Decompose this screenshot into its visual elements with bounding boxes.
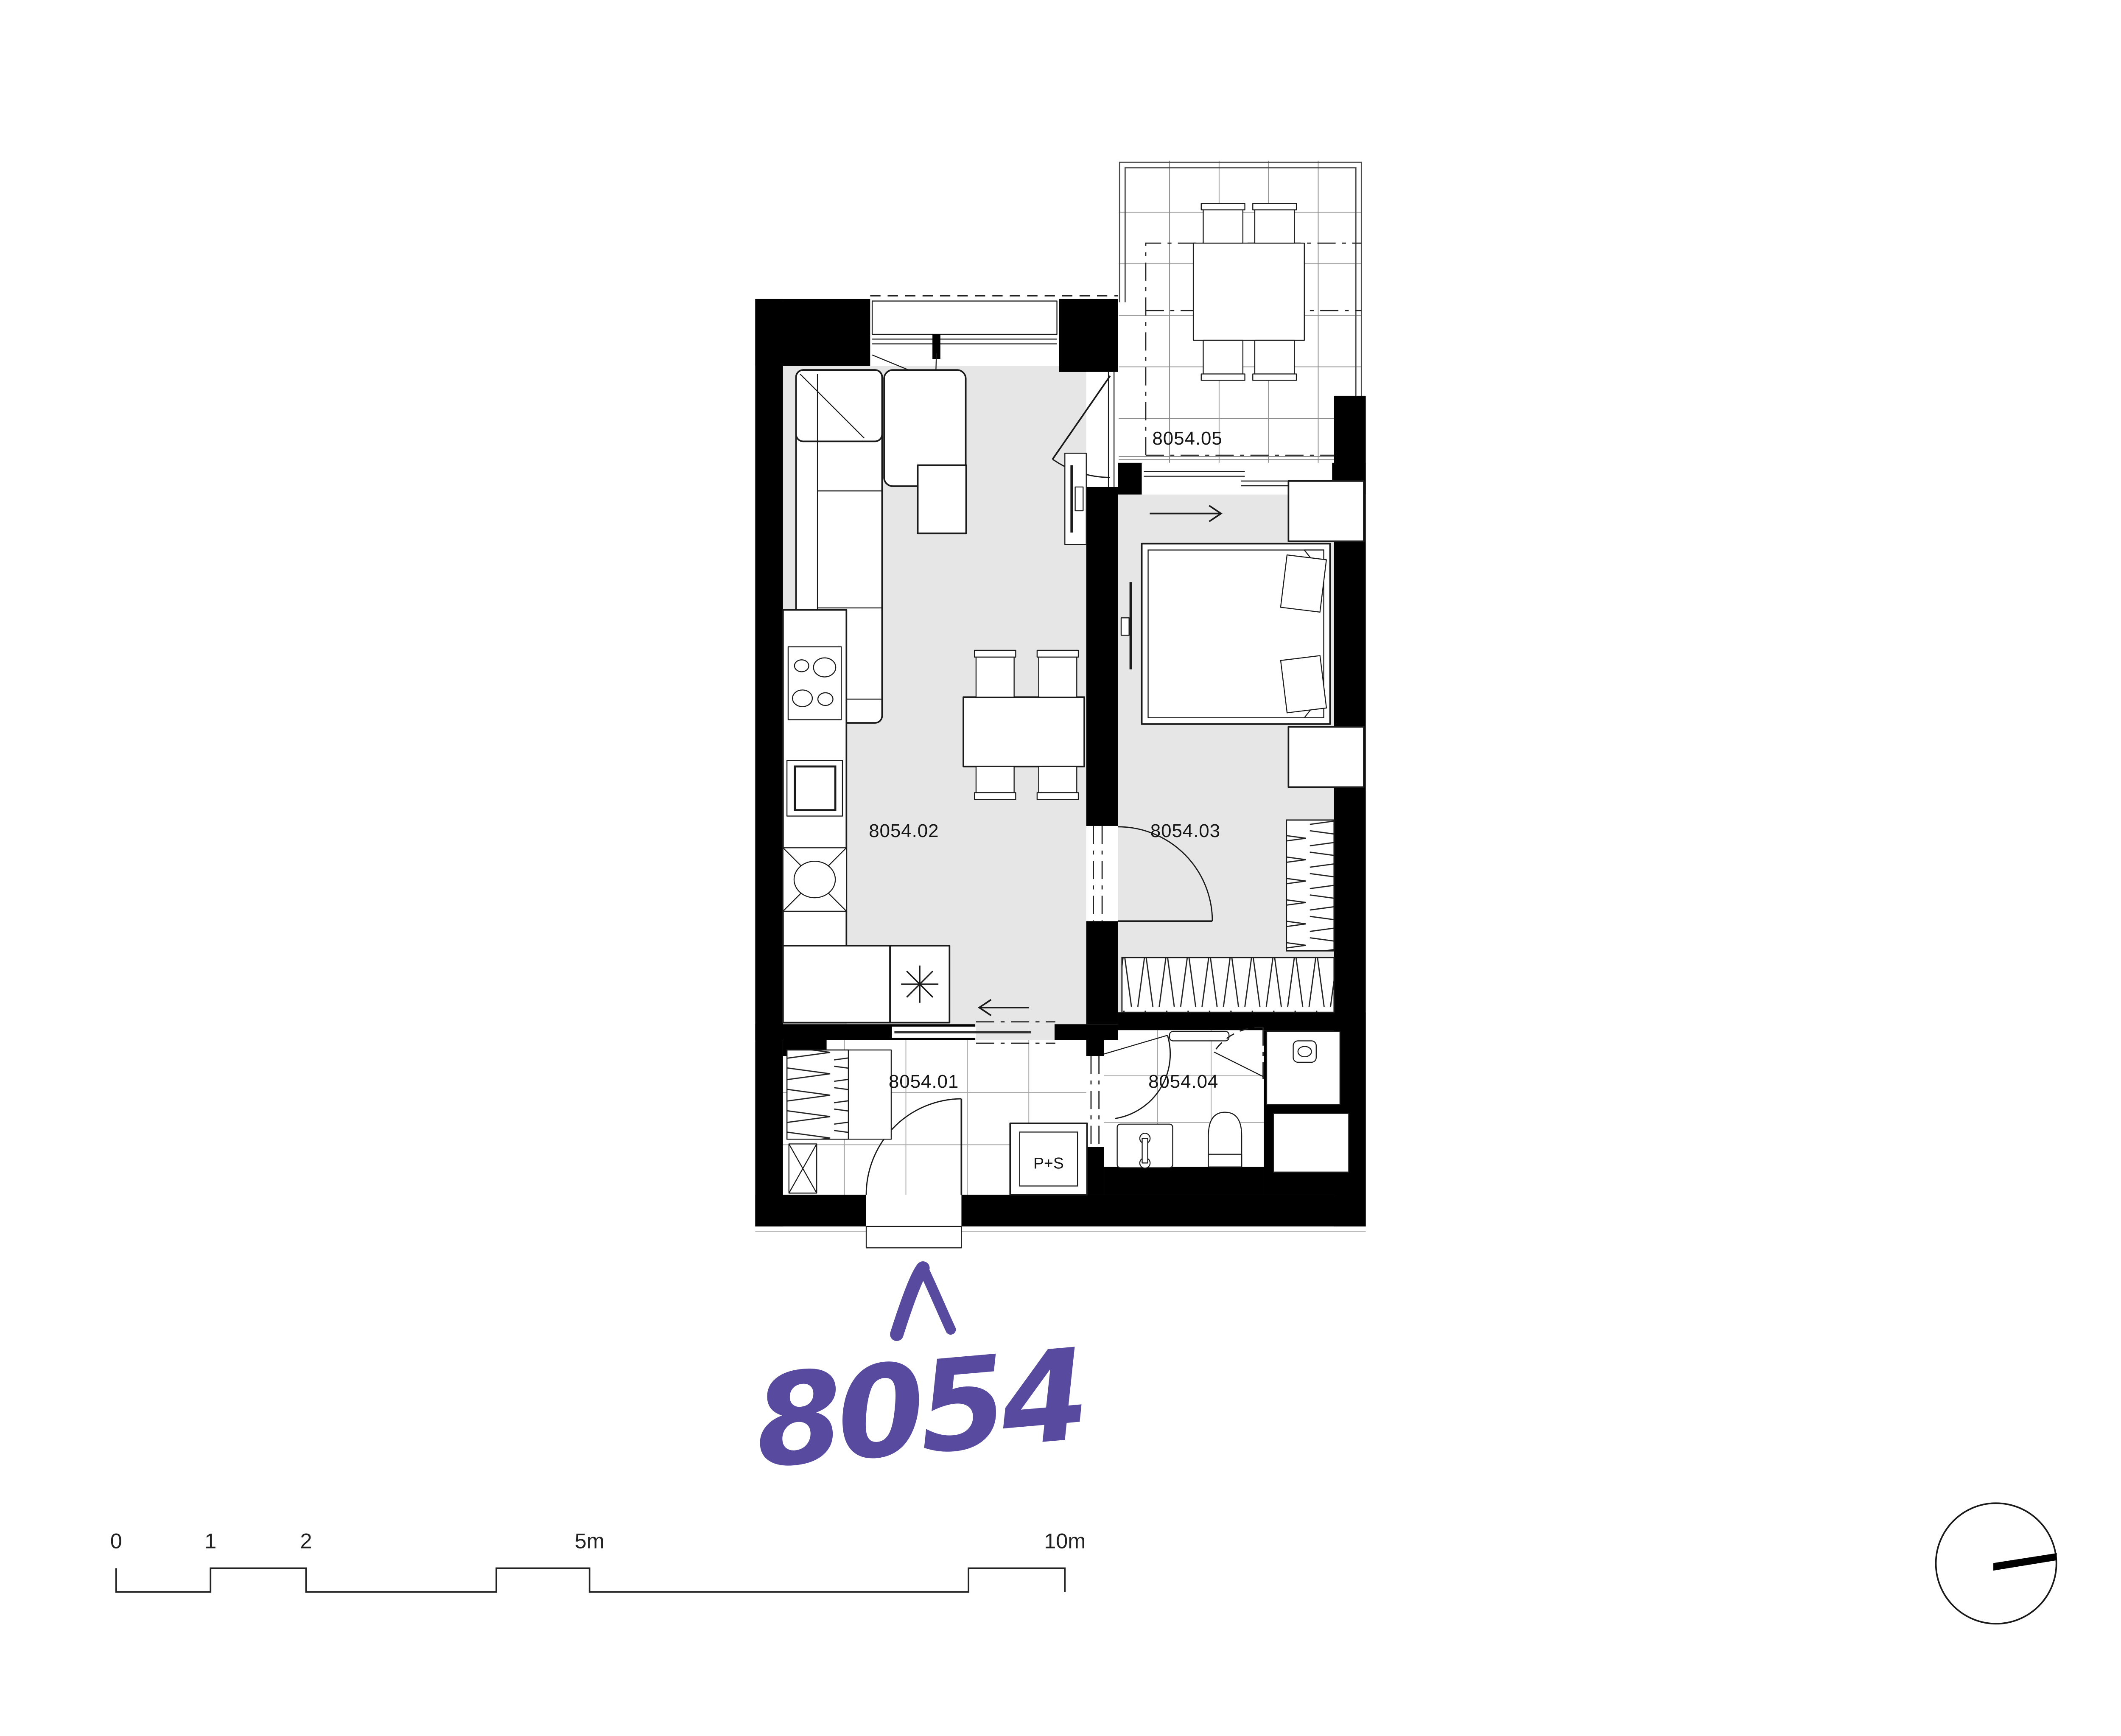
wardrobe [1287, 820, 1334, 951]
scale-tick-2: 2 [300, 1529, 312, 1553]
unit-number: 8054 [749, 1322, 1089, 1497]
scale-bar-shape [116, 1568, 1065, 1592]
kitchen-sink [783, 848, 847, 911]
balcony-chair [1201, 204, 1245, 243]
up-chevron-icon [897, 1268, 951, 1334]
scale-tick-10m: 10m [1044, 1529, 1086, 1553]
balcony-chair [1253, 204, 1296, 243]
nightstand [1288, 481, 1364, 541]
hall-cabinet [789, 1144, 817, 1193]
scale-tick-0: 0 [110, 1529, 122, 1553]
fridge [890, 946, 949, 1022]
toilet [1209, 1112, 1242, 1167]
room-label-living: 8054.02 [869, 820, 939, 841]
scale-tick-5m: 5m [575, 1529, 604, 1553]
dining-chair [1037, 650, 1078, 697]
washer-niche [1267, 1031, 1340, 1105]
room-label-bedroom: 8054.03 [1150, 820, 1220, 841]
floor-plan-canvas: P+S [0, 0, 2121, 1736]
oven [787, 761, 842, 816]
balcony-furniture [1193, 204, 1304, 381]
unit-annotation: 8054 [749, 1268, 1089, 1497]
scale-bar: 0 1 2 5m 10m [110, 1529, 1086, 1592]
dining-chair [974, 650, 1016, 697]
snowflake-icon [901, 966, 938, 1003]
pillow [1281, 655, 1326, 713]
north-indicator-icon [1936, 1503, 2057, 1624]
balcony-table [1193, 243, 1304, 340]
balcony-chair [1201, 340, 1245, 380]
room-label-bathroom: 8054.04 [1148, 1071, 1218, 1092]
washing-machine-icon [1293, 1041, 1316, 1062]
balcony-chair [1253, 340, 1296, 380]
bed [1142, 544, 1330, 724]
dining-chair [1037, 767, 1078, 800]
north-needle [1993, 1553, 2057, 1571]
storage-niche [1273, 1114, 1349, 1172]
wardrobe [1122, 958, 1334, 1012]
coffee-table [918, 465, 966, 533]
bathroom-sink [1117, 1124, 1173, 1168]
nightstand [1288, 727, 1364, 787]
dining-table [963, 697, 1084, 767]
hall-wardrobe [787, 1050, 891, 1139]
entrance-threshold [866, 1226, 961, 1248]
room-label-balcony: 8054.05 [1152, 428, 1222, 449]
shaft-label: P+S [1033, 1154, 1064, 1172]
ps-shaft: P+S [1010, 1123, 1087, 1195]
towel-rail [1170, 1031, 1229, 1041]
room-label-hallway: 8054.01 [889, 1071, 959, 1092]
cooktop [788, 647, 841, 720]
scale-tick-1: 1 [204, 1529, 216, 1553]
dining-chair [974, 767, 1016, 800]
pillow [1281, 555, 1326, 612]
tv-cabinet [1065, 453, 1086, 544]
